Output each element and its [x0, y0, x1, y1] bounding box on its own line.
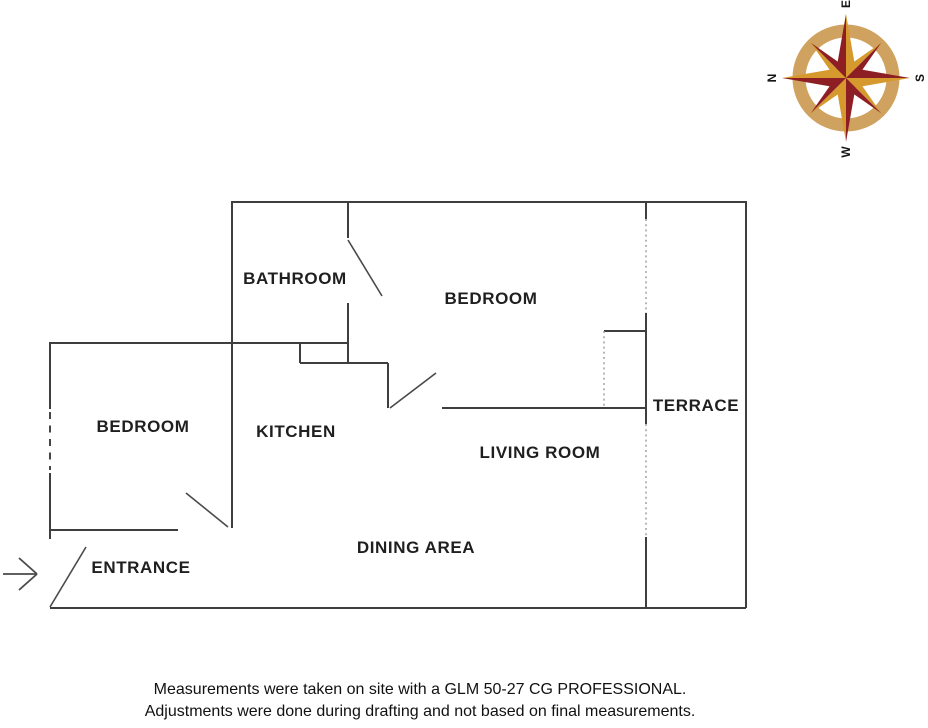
- floor-plan-page: BATHROOM BEDROOM BEDROOM KITCHEN LIVING …: [0, 0, 928, 728]
- compass-letter-s: S: [913, 74, 927, 82]
- measurement-note-line1: Measurements were taken on site with a G…: [0, 679, 840, 701]
- measurement-note-line2: Adjustments were done during drafting an…: [0, 701, 840, 723]
- door-bedroom-left-swing: [186, 493, 228, 527]
- room-label-dining-area: DINING AREA: [357, 538, 475, 558]
- door-kitchen-swing: [390, 373, 436, 408]
- measurement-note: Measurements were taken on site with a G…: [0, 679, 840, 723]
- compass-letter-n: N: [765, 74, 779, 83]
- entrance-arrow-barb-top: [19, 558, 37, 574]
- entrance-arrow-barb-bottom: [19, 574, 37, 590]
- compass-rose-icon: N E S W: [756, 0, 928, 168]
- room-label-bathroom: BATHROOM: [243, 269, 347, 289]
- room-label-bedroom-top: BEDROOM: [445, 289, 538, 309]
- compass-letter-w: W: [839, 146, 853, 158]
- room-label-entrance: ENTRANCE: [91, 558, 190, 578]
- entrance-arrow-icon: [3, 558, 37, 590]
- room-label-living-room: LIVING ROOM: [480, 443, 601, 463]
- door-bathroom-swing: [348, 240, 382, 296]
- room-label-kitchen: KITCHEN: [256, 422, 336, 442]
- room-label-terrace: TERRACE: [653, 396, 739, 416]
- door-entrance-panel: [50, 547, 86, 607]
- compass-letter-e: E: [839, 0, 853, 8]
- room-label-bedroom-left: BEDROOM: [97, 417, 190, 437]
